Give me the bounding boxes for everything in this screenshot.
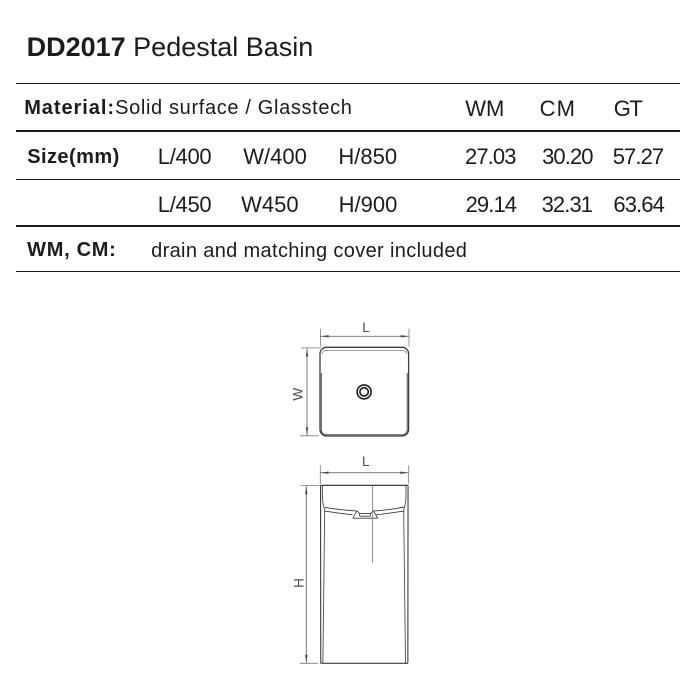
svg-text:H: H — [292, 578, 307, 588]
svg-text:W: W — [291, 388, 306, 401]
svg-text:L: L — [362, 320, 370, 335]
svg-text:L: L — [362, 454, 370, 469]
